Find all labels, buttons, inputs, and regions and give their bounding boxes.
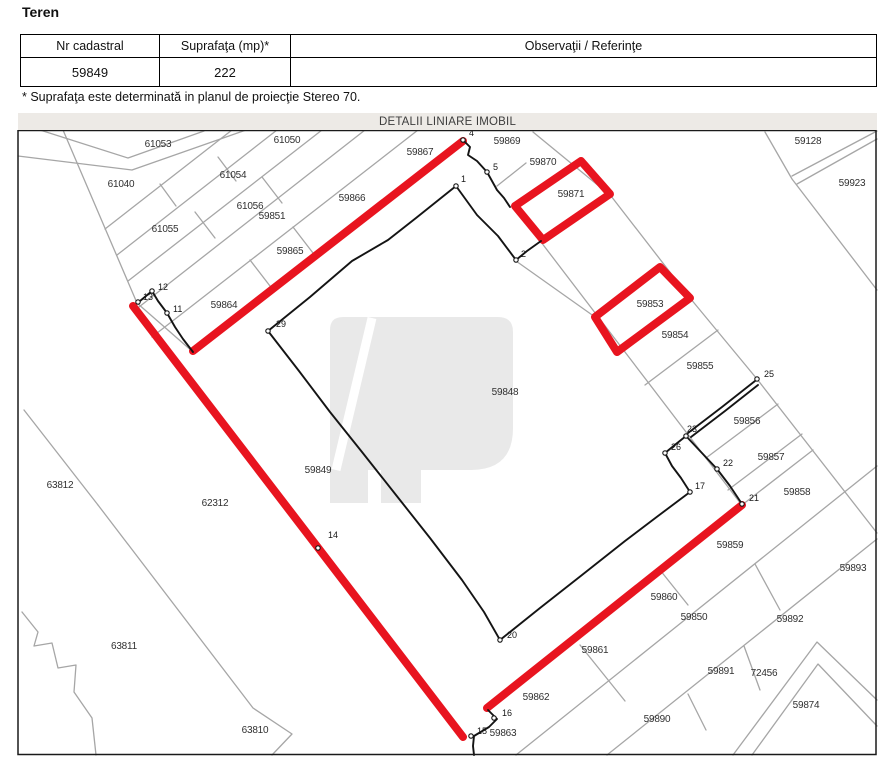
cadastral-map: 4512291213111425232622172120161561053610… [0,130,895,768]
parcel-label: 63812 [47,480,74,491]
point-label: 11 [173,304,182,314]
parcel-label: 72456 [751,668,778,679]
map-title: DETALII LINIARE IMOBIL [379,116,516,128]
parcel-label: 61053 [145,139,172,150]
survey-point-marker [684,434,688,438]
point-label: 22 [723,458,733,468]
cell-nr-cadastral: 59849 [21,58,160,87]
parcel-label: 59848 [492,387,519,398]
parcel-label: 59856 [734,416,761,427]
parcel-label: 63811 [111,641,138,652]
parcel-label: 61055 [152,224,179,235]
table-row: 59849 222 [21,58,877,87]
point-label: 1 [461,174,466,184]
point-label: 15 [477,726,487,736]
parcel-label: 59892 [777,614,804,625]
parcel-label: 59859 [717,540,744,551]
parcel-label: 59858 [784,487,811,498]
survey-point-marker [316,546,320,550]
survey-point-marker [663,451,667,455]
parcel-label: 59128 [795,136,822,147]
land-table: Nr cadastral Suprafaţa (mp)* Observaţii … [20,34,877,87]
parcel-label: 59867 [407,147,434,158]
survey-point-marker [165,311,169,315]
parcel-label: 59855 [687,361,714,372]
survey-point-marker [740,502,744,506]
parcel-label: 59862 [523,692,550,703]
point-label: 16 [502,708,512,718]
survey-point-marker [136,300,140,304]
parcel-label: 59874 [793,700,820,711]
parcel-label: 59864 [211,300,238,311]
point-label: 26 [671,442,681,452]
parcel-label: 59854 [662,330,689,341]
parcel-label: 63810 [242,725,269,736]
point-label: 25 [764,369,774,379]
parcel-label: 59865 [277,246,304,257]
col-header-nr-cadastral: Nr cadastral [21,35,160,58]
parcel-label: 59869 [494,136,521,147]
parcel-label: 59890 [644,714,671,725]
point-label: 29 [276,319,286,329]
survey-point-marker [715,467,719,471]
map-title-bar: DETALII LINIARE IMOBIL [18,113,877,130]
point-label: 20 [507,630,517,640]
cell-observatii [291,58,877,87]
page-title: Teren [22,4,59,20]
point-label: 2 [521,249,526,259]
point-label: 23 [687,424,697,434]
parcel-label: 59849 [305,465,332,476]
parcel-label: 59857 [758,452,785,463]
point-label: 12 [158,282,168,292]
point-label: 17 [695,481,705,491]
point-label: 5 [493,162,498,172]
survey-point-marker [454,184,458,188]
survey-point-marker [469,734,473,738]
parcel-label: 61050 [274,135,301,146]
col-header-suprafata: Suprafaţa (mp)* [160,35,291,58]
parcel-label: 59850 [681,612,708,623]
parcel-label: 62312 [202,498,229,509]
survey-point-marker [755,377,759,381]
parcel-label: 59893 [840,563,867,574]
parcel-label: 59923 [839,178,866,189]
survey-point-marker [266,329,270,333]
parcel-label: 61040 [108,179,135,190]
cell-suprafata: 222 [160,58,291,87]
table-header-row: Nr cadastral Suprafaţa (mp)* Observaţii … [21,35,877,58]
parcel-label: 59870 [530,157,557,168]
point-label: 21 [749,493,759,503]
parcel-label: 59863 [490,728,517,739]
survey-point-marker [514,258,518,262]
parcel-label: 59871 [558,189,585,200]
parcel-label: 59860 [651,592,678,603]
parcel-label: 59851 [259,211,286,222]
footnote: * Suprafaţa este determinată in planul d… [22,90,360,104]
col-header-observatii: Observaţii / Referinţe [291,35,877,58]
parcel-label: 59891 [708,666,735,677]
survey-point-marker [492,716,496,720]
parcel-label: 59861 [582,645,609,656]
parcel-label: 61054 [220,170,247,181]
survey-point-marker [485,170,489,174]
survey-point-marker [688,490,692,494]
cadastral-document: Teren Nr cadastral Suprafaţa (mp)* Obser… [0,0,895,768]
point-label: 14 [328,530,338,540]
parcel-label: 59853 [637,299,664,310]
point-label: 13 [143,292,153,302]
parcel-label: 59866 [339,193,366,204]
survey-point-marker [461,138,465,142]
survey-point-marker [498,638,502,642]
